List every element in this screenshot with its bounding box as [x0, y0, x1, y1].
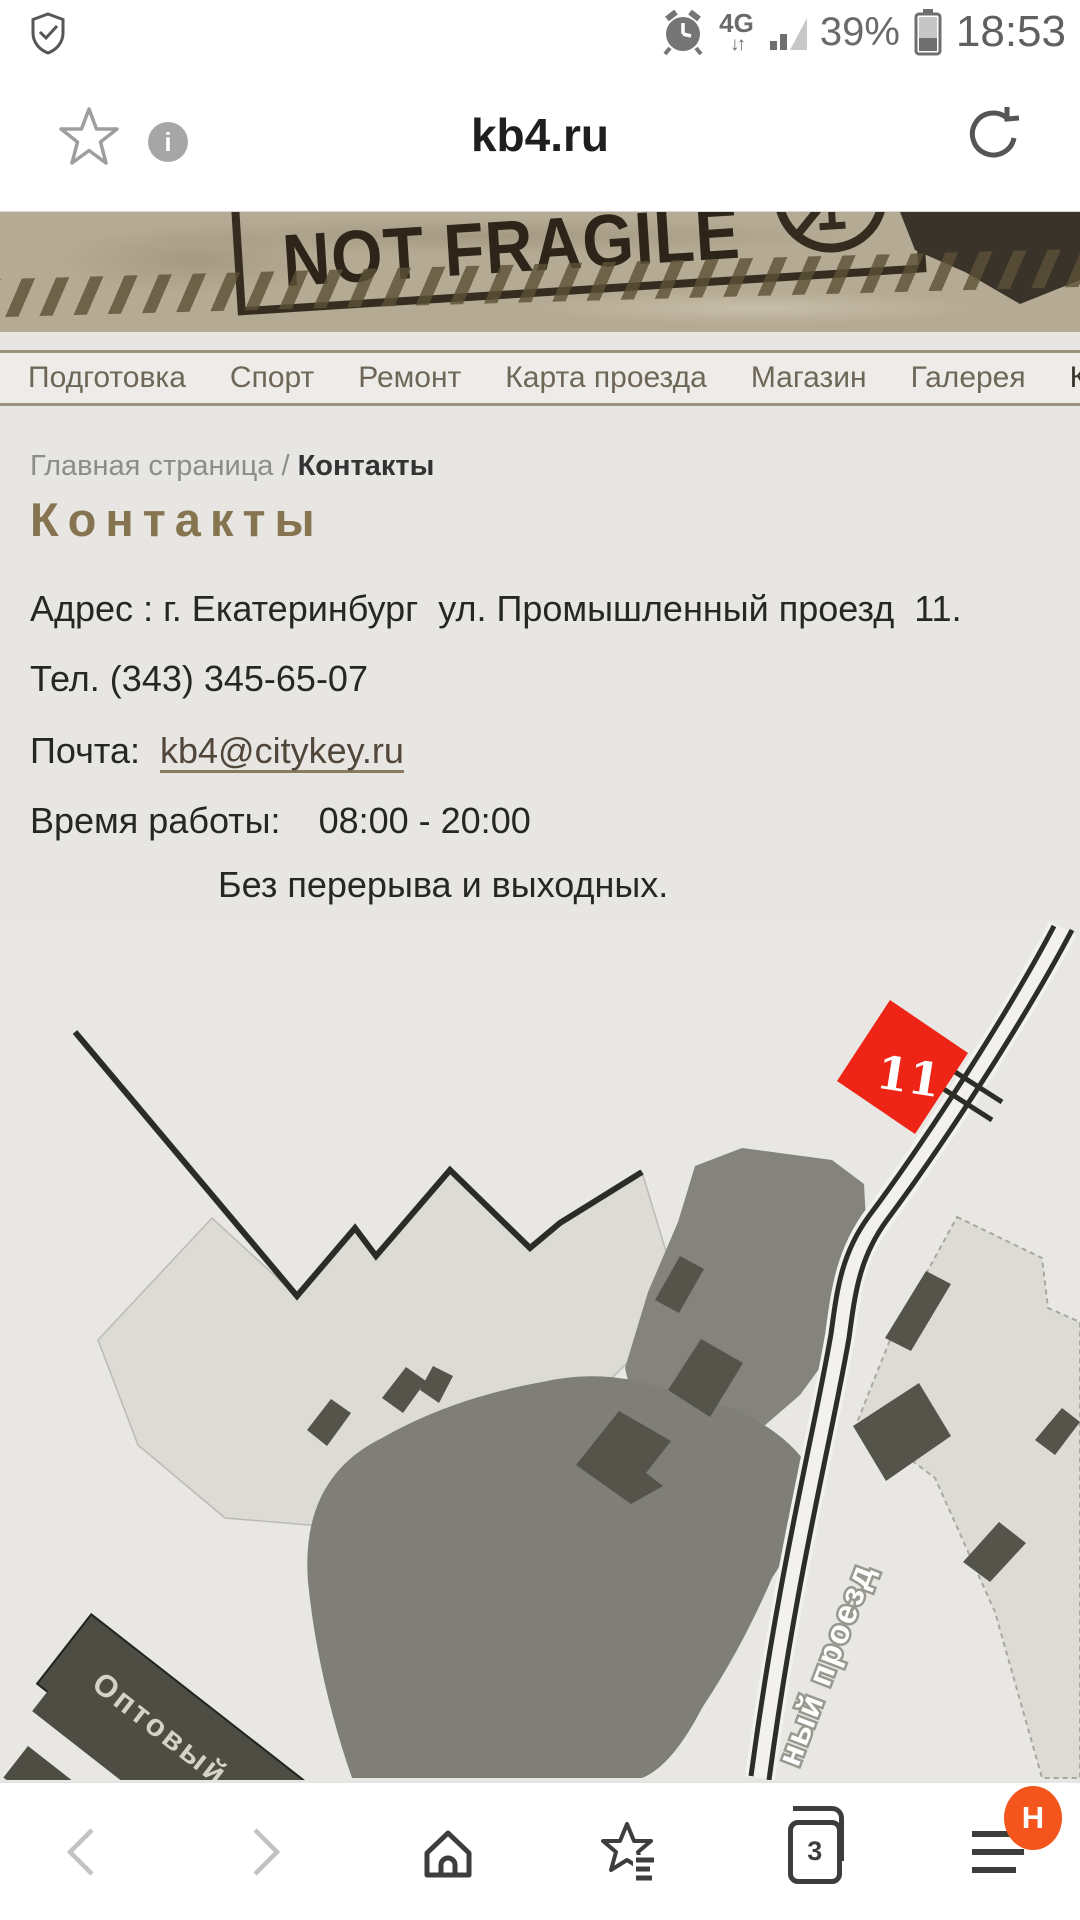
address-line: Адрес : г. Екатеринбург ул. Промышленный…: [30, 588, 962, 630]
alarm-clock-icon: [659, 7, 707, 57]
screen: 4G ↓↑ 39% 18:53 i kb4.ru: [0, 0, 1080, 1920]
browser-url-bar: i kb4.ru: [0, 64, 1080, 212]
email-label: Почта:: [30, 730, 160, 771]
page-title: Контакты: [30, 492, 324, 547]
hours-line: Время работы:08:00 - 20:00: [30, 800, 531, 842]
refresh-icon[interactable]: [962, 104, 1024, 171]
home-button[interactable]: [414, 1818, 482, 1886]
map-marker-label: 11: [873, 1045, 945, 1108]
phone-line: Тел. (343) 345-65-07: [30, 658, 368, 700]
star-list-icon: [600, 1820, 664, 1884]
email-link[interactable]: kb4@citykey.ru: [160, 730, 404, 771]
nav-item-karta-proezda[interactable]: Карта проезда: [505, 361, 707, 395]
site-nav: Подготовка Спорт Ремонт Карта проезда Ма…: [0, 350, 1080, 406]
breadcrumb-current: Контакты: [298, 450, 435, 482]
nav-item-remont[interactable]: Ремонт: [358, 361, 461, 395]
location-map[interactable]: Оптовый ры ный проезд 11: [0, 920, 1080, 1780]
nav-item-podgotovka[interactable]: Подготовка: [28, 361, 186, 395]
breadcrumb: Главная страница / Контакты: [30, 450, 434, 483]
bookmarks-button[interactable]: [598, 1818, 666, 1886]
nav-item-sport[interactable]: Спорт: [230, 361, 314, 395]
site-header-image: NOT FRAGILE: [0, 212, 1080, 332]
clock-time: 18:53: [956, 7, 1066, 57]
url-title[interactable]: kb4.ru: [0, 108, 1080, 162]
hours-value: 08:00 - 20:00: [319, 800, 531, 841]
nav-item-magazin[interactable]: Магазин: [751, 361, 867, 395]
hours-label: Время работы:: [30, 800, 281, 841]
signal-icon: [766, 10, 808, 54]
breadcrumb-home[interactable]: Главная страница: [30, 450, 273, 482]
back-button[interactable]: [48, 1818, 116, 1886]
forward-button[interactable]: [231, 1818, 299, 1886]
nav-item-galereya[interactable]: Галерея: [911, 361, 1026, 395]
menu-badge: H: [1004, 1786, 1062, 1850]
status-bar: 4G ↓↑ 39% 18:53: [0, 0, 1080, 64]
nav-item-kontakty[interactable]: Контакты: [1070, 361, 1080, 395]
network-4g-icon: 4G ↓↑: [719, 10, 754, 54]
battery-icon: [912, 6, 944, 58]
tabs-count: 3: [788, 1820, 842, 1884]
breadcrumb-separator: /: [273, 450, 297, 482]
tabs-button[interactable]: 3: [781, 1818, 849, 1886]
home-icon: [415, 1820, 481, 1884]
shield-check-icon: [28, 10, 68, 56]
menu-button[interactable]: H: [964, 1818, 1032, 1886]
battery-percent: 39%: [820, 10, 900, 55]
browser-toolbar: 3 H: [0, 1782, 1080, 1920]
email-line: Почта: kb4@citykey.ru: [30, 730, 404, 772]
hours-note: Без перерыва и выходных.: [218, 864, 668, 906]
